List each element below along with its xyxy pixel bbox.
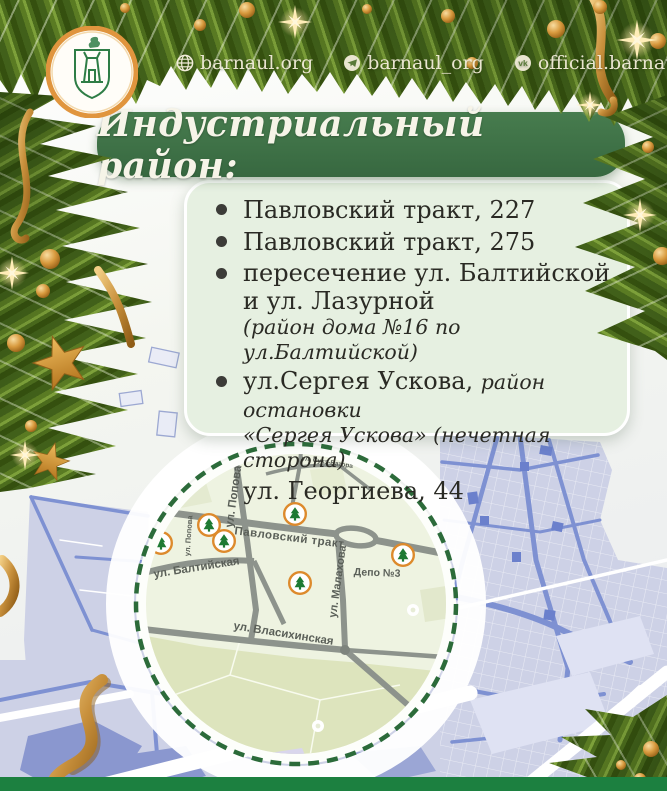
- map-stop-dot: [407, 604, 419, 616]
- list-item: пересечение ул. Балтийской и ул. Лазурно…: [216, 259, 611, 365]
- list-item: ул.Сергея Ускова, район остановки «Серге…: [216, 367, 611, 473]
- address-text: ул. Георгиева, 44: [243, 476, 464, 506]
- website-link[interactable]: barnaul.org: [176, 52, 313, 74]
- bullet-dot: [216, 236, 227, 247]
- bullet-dot: [216, 376, 227, 387]
- address-text: пересечение ул. Балтийской: [243, 259, 611, 287]
- address-text: и ул. Лазурной: [243, 287, 611, 315]
- poi-label-depot: Депо №3: [354, 566, 401, 580]
- bullet-dot: [216, 268, 227, 279]
- bullet-dot: [216, 204, 227, 215]
- telegram-link[interactable]: barnaul_org: [343, 52, 484, 74]
- vk-icon: vk: [514, 54, 532, 72]
- tree-icon: [392, 544, 414, 566]
- globe-icon: [176, 54, 194, 72]
- tree-icon: [213, 530, 235, 552]
- address-note: «Сергея Ускова» (нечетная сторона): [243, 423, 611, 473]
- district-banner: Индустриальный район:: [97, 112, 625, 177]
- telegram-icon: [343, 54, 361, 72]
- list-item: Павловский тракт, 275: [216, 227, 611, 257]
- svg-text:vk: vk: [518, 58, 528, 68]
- list-item: ул. Георгиева, 44: [216, 476, 611, 506]
- address-text: ул.Сергея Ускова, район остановки: [243, 367, 611, 423]
- tree-icon: [289, 572, 311, 594]
- address-text: Павловский тракт, 275: [243, 227, 535, 257]
- locations-card: Павловский тракт, 227 Павловский тракт, …: [184, 180, 630, 436]
- footer-bar: [0, 777, 667, 791]
- address-note: (район дома №16 по ул.Балтийской): [243, 315, 611, 365]
- list-item: Павловский тракт, 227: [216, 195, 611, 225]
- map-stop-dot: [312, 720, 324, 732]
- barnaul-coat-of-arms-logo: [46, 26, 138, 118]
- social-links-row: barnaul.org barnaul_org vk official.barn…: [176, 52, 667, 74]
- vk-link[interactable]: vk official.barnaul: [514, 52, 667, 74]
- social-label: barnaul.org: [200, 52, 313, 74]
- social-label: barnaul_org: [367, 52, 484, 74]
- infographic-page: ул. Попова ул. Попова Павловский тракт у…: [0, 0, 667, 791]
- tree-icon: [284, 503, 306, 525]
- map-junction: [340, 645, 350, 655]
- social-label: official.barnaul: [538, 52, 667, 74]
- page-title: Индустриальный район:: [97, 103, 625, 187]
- address-text: Павловский тракт, 227: [243, 195, 535, 225]
